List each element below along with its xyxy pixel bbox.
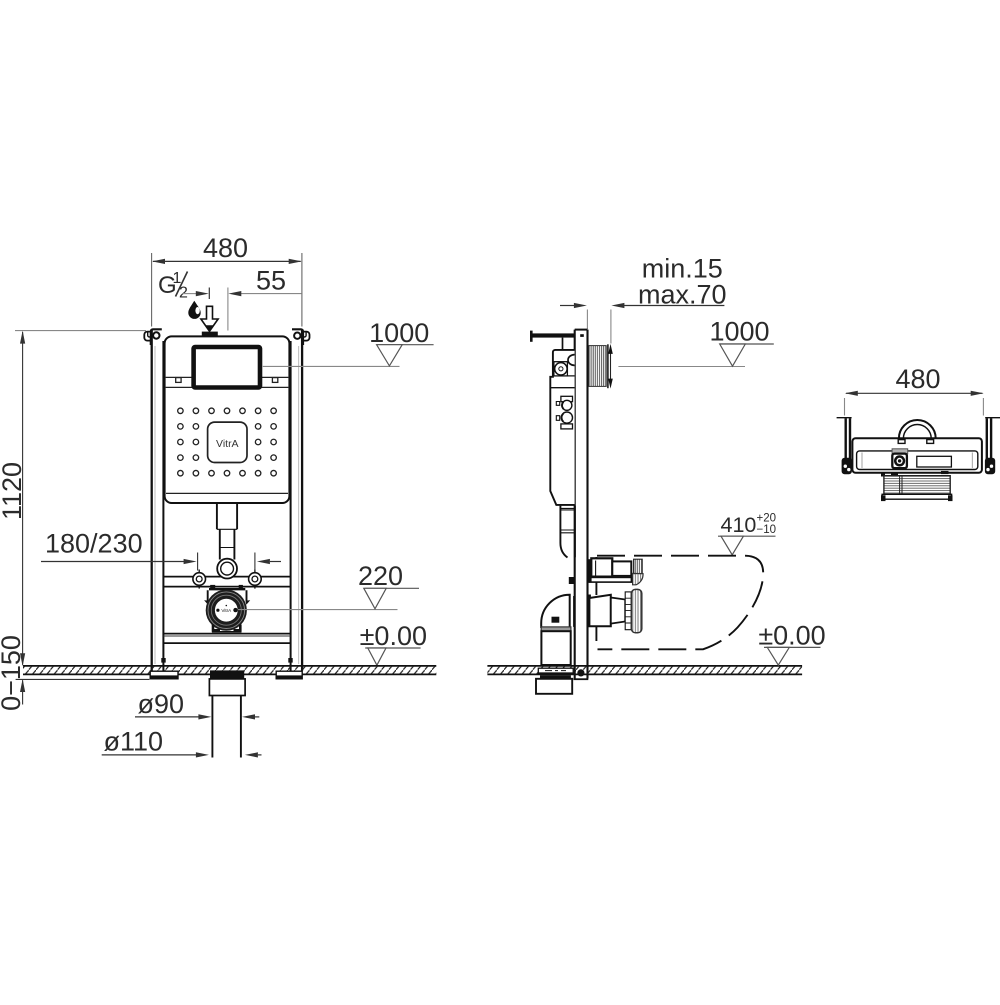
svg-text:±0.00: ±0.00	[758, 621, 825, 651]
svg-text:±0.00: ±0.00	[360, 621, 427, 651]
svg-text:1120: 1120	[0, 462, 27, 520]
svg-text:0−150: 0−150	[0, 635, 26, 711]
svg-text:55: 55	[256, 265, 286, 295]
svg-text:1000: 1000	[709, 316, 769, 346]
svg-text:2: 2	[179, 285, 188, 302]
svg-text:VitrA: VitrA	[216, 438, 239, 450]
svg-text:220: 220	[358, 561, 403, 591]
svg-text:+20: +20	[757, 513, 777, 525]
svg-text:VitrA: VitrA	[221, 608, 232, 613]
svg-text:1000: 1000	[369, 318, 429, 348]
svg-text:480: 480	[203, 233, 248, 263]
svg-text:480: 480	[895, 364, 940, 394]
svg-text:ø90: ø90	[138, 689, 185, 719]
svg-text:180/230: 180/230	[45, 528, 143, 558]
svg-text:ø110: ø110	[104, 726, 164, 756]
svg-text:410: 410	[721, 513, 757, 537]
svg-text:−10: −10	[757, 524, 777, 536]
